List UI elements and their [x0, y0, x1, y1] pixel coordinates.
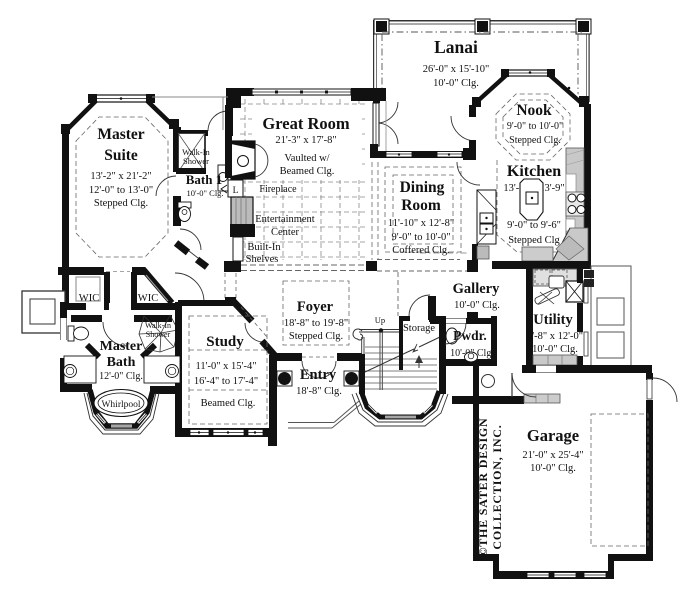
svg-text:Great Room: Great Room: [262, 114, 349, 133]
svg-text:Kitchen: Kitchen: [507, 163, 561, 180]
svg-text:10'-0" Clg.: 10'-0" Clg.: [433, 78, 479, 89]
svg-text:11'-10" x 12'-8": 11'-10" x 12'-8": [388, 218, 454, 229]
svg-text:Bath 1: Bath 1: [186, 172, 222, 187]
svg-text:9'-0" to 10'-0": 9'-0" to 10'-0": [391, 232, 450, 243]
svg-text:Coffered Clg.: Coffered Clg.: [392, 245, 450, 256]
svg-text:Entry: Entry: [300, 367, 337, 383]
svg-text:Fireplace: Fireplace: [259, 184, 297, 195]
svg-text:9'-0" to 10'-0": 9'-0" to 10'-0": [507, 121, 563, 132]
svg-text:Built-In: Built-In: [247, 242, 281, 253]
svg-text:Dining: Dining: [400, 179, 445, 196]
svg-text:Stepped Clg.: Stepped Clg.: [94, 198, 148, 209]
svg-text:WIC: WIC: [138, 293, 158, 304]
svg-text:Master: Master: [100, 339, 143, 354]
svg-text:21'-0" x 25'-4": 21'-0" x 25'-4": [522, 450, 583, 461]
svg-text:Storage: Storage: [403, 323, 435, 334]
svg-text:13'-2" x 21'-2": 13'-2" x 21'-2": [90, 171, 151, 182]
svg-text:Foyer: Foyer: [297, 299, 334, 315]
svg-text:Study: Study: [206, 334, 244, 350]
svg-text:26'-0" x 15'-10": 26'-0" x 15'-10": [423, 64, 490, 75]
svg-text:WIC: WIC: [79, 293, 99, 304]
svg-text:Suite: Suite: [104, 147, 138, 164]
svg-text:Beamed Clg.: Beamed Clg.: [280, 166, 335, 177]
svg-text:Stepped Clg: Stepped Clg: [508, 235, 560, 246]
svg-text:Bath: Bath: [107, 355, 136, 370]
svg-text:11'-0" x 15'-4": 11'-0" x 15'-4": [196, 361, 257, 372]
svg-text:Beamed Clg.: Beamed Clg.: [201, 398, 256, 409]
svg-text:18'-8" Clg.: 18'-8" Clg.: [296, 386, 342, 397]
svg-text:Whirlpool: Whirlpool: [101, 400, 140, 410]
svg-text:18'-8" to 19'-8": 18'-8" to 19'-8": [284, 318, 348, 329]
svg-text:Shower: Shower: [183, 156, 209, 166]
svg-text:21'-3" x 17'-8": 21'-3" x 17'-8": [275, 135, 336, 146]
svg-text:Garage: Garage: [527, 426, 579, 445]
svg-text:COLLECTION, INC.: COLLECTION, INC.: [490, 424, 504, 549]
svg-text:Lanai: Lanai: [434, 37, 478, 57]
svg-text:12'-0" Clg.: 12'-0" Clg.: [99, 371, 143, 382]
svg-text:Stepped Clg.: Stepped Clg.: [509, 135, 561, 146]
svg-text:9'-0" to 9'-6": 9'-0" to 9'-6": [507, 220, 561, 231]
svg-text:Center: Center: [271, 227, 299, 238]
svg-text:10'-0" Clg.: 10'-0" Clg.: [530, 463, 576, 474]
svg-text:Shelves: Shelves: [246, 254, 279, 265]
svg-text:Up: Up: [375, 315, 385, 325]
svg-text:Room: Room: [401, 197, 441, 214]
svg-text:10'-0" Clg.: 10'-0" Clg.: [454, 300, 500, 311]
svg-text:Nook: Nook: [516, 102, 552, 119]
svg-text:Entertainment: Entertainment: [255, 214, 315, 225]
svg-text:©THE SATER DESIGN: ©THE SATER DESIGN: [476, 417, 490, 556]
svg-text:Vaulted w/: Vaulted w/: [284, 153, 329, 164]
svg-text:Shower: Shower: [146, 330, 171, 339]
svg-text:Stepped Clg.: Stepped Clg.: [289, 331, 343, 342]
svg-text:Utility: Utility: [533, 312, 573, 328]
svg-text:6'-8" x 12'-0": 6'-8" x 12'-0": [527, 331, 583, 342]
svg-text:10'-0" Clg.: 10'-0" Clg.: [532, 344, 578, 355]
svg-text:Pwdr.: Pwdr.: [453, 328, 487, 343]
svg-text:Gallery: Gallery: [453, 281, 500, 297]
svg-text:10'-0" Clg.: 10'-0" Clg.: [186, 188, 223, 198]
svg-text:Walk-In: Walk-In: [145, 321, 171, 330]
svg-text:16'-4" to 17'-4": 16'-4" to 17'-4": [194, 376, 258, 387]
svg-text:L: L: [233, 186, 239, 196]
svg-text:12'-0" to 13'-0": 12'-0" to 13'-0": [89, 185, 153, 196]
svg-text:Master: Master: [97, 126, 144, 143]
